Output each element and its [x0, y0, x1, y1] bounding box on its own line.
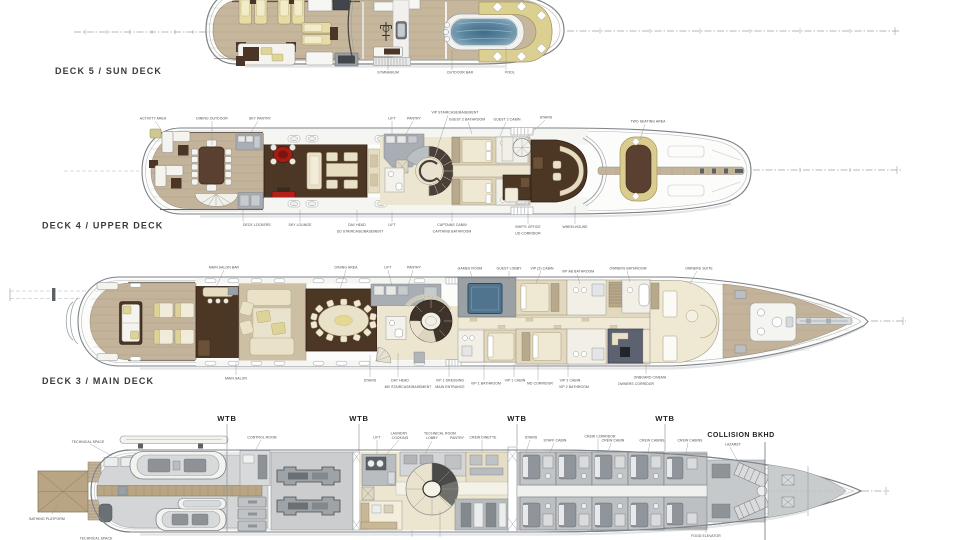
svg-text:STAIRS: STAIRS: [540, 116, 553, 120]
svg-text:COOKING: COOKING: [392, 436, 409, 440]
svg-text:TECHNICAL SPACE: TECHNICAL SPACE: [80, 537, 113, 540]
svg-text:UD CORRIDOR: UD CORRIDOR: [515, 232, 541, 236]
svg-text:MAIN SALON: MAIN SALON: [225, 377, 247, 381]
svg-text:DECK 4 / UPPER DECK: DECK 4 / UPPER DECK: [42, 221, 163, 231]
svg-text:GUEST LOBBY: GUEST LOBBY: [497, 267, 523, 271]
svg-text:PANTRY: PANTRY: [407, 117, 422, 121]
svg-text:OWNERS BATHROOM: OWNERS BATHROOM: [609, 267, 646, 271]
svg-text:VIP 2 CABIN: VIP 2 CABIN: [560, 379, 581, 383]
svg-text:CONTROL ROOM: CONTROL ROOM: [247, 436, 276, 440]
svg-text:GUEST 2 BATHROOM: GUEST 2 BATHROOM: [449, 118, 485, 122]
svg-text:LIFT: LIFT: [384, 266, 391, 270]
svg-text:VIP AB BATHROOM: VIP AB BATHROOM: [562, 270, 595, 274]
svg-text:DECK 3 / MAIN DECK: DECK 3 / MAIN DECK: [42, 376, 154, 386]
svg-text:CAPTAINS BATHROOM: CAPTAINS BATHROOM: [433, 230, 472, 234]
svg-text:VIP 1 DRESSING: VIP 1 DRESSING: [436, 379, 465, 383]
svg-text:DAY HEAD: DAY HEAD: [391, 379, 409, 383]
svg-text:CREW CABINS: CREW CABINS: [639, 439, 665, 443]
svg-text:OWNERS SUITE: OWNERS SUITE: [685, 267, 713, 271]
svg-text:PANTRY: PANTRY: [407, 266, 422, 270]
svg-text:VIP 1 BATHROOM: VIP 1 BATHROOM: [471, 382, 501, 386]
svg-text:CREW DINETTE: CREW DINETTE: [469, 436, 497, 440]
svg-text:WTB: WTB: [655, 414, 674, 423]
svg-text:DECK 5 / SUN DECK: DECK 5 / SUN DECK: [55, 66, 162, 76]
svg-text:GUEST 2 CABIN: GUEST 2 CABIN: [493, 118, 521, 122]
svg-text:VIP (2) CABIN: VIP (2) CABIN: [530, 267, 554, 271]
svg-text:CREW CABIN: CREW CABIN: [602, 439, 625, 443]
svg-text:ONBOARD CINEMA: ONBOARD CINEMA: [634, 376, 667, 380]
svg-text:SKY LOUNGE: SKY LOUNGE: [289, 223, 313, 227]
svg-text:SKY PANTRY: SKY PANTRY: [249, 117, 272, 121]
svg-text:GAMES ROOM: GAMES ROOM: [458, 267, 483, 271]
svg-text:GYMNASIUM: GYMNASIUM: [377, 71, 399, 75]
svg-text:MD STAIRCASE/BASEMENT: MD STAIRCASE/BASEMENT: [385, 385, 432, 389]
svg-text:POOL: POOL: [505, 71, 515, 75]
svg-text:LIFT: LIFT: [388, 117, 395, 121]
svg-text:SHIP'S OFFICE: SHIP'S OFFICE: [515, 225, 541, 229]
svg-text:CREW CABINS: CREW CABINS: [677, 439, 703, 443]
svg-text:DINING AREA: DINING AREA: [335, 266, 359, 270]
svg-text:WHEELHOUSE: WHEELHOUSE: [562, 225, 588, 229]
svg-text:STAIRS: STAIRS: [364, 379, 377, 383]
svg-text:DECK LOCKERS: DECK LOCKERS: [243, 223, 271, 227]
svg-text:TECHNICAL SPACE: TECHNICAL SPACE: [72, 440, 105, 444]
svg-text:MD CORRIDOR: MD CORRIDOR: [527, 382, 553, 386]
svg-text:LOBBY: LOBBY: [426, 436, 438, 440]
svg-text:ACTIVITY AREA: ACTIVITY AREA: [140, 117, 167, 121]
svg-text:VIP STAIRCASE/BASEMENT: VIP STAIRCASE/BASEMENT: [431, 111, 478, 115]
svg-text:LAZARET: LAZARET: [725, 443, 741, 447]
svg-text:WTB: WTB: [507, 414, 526, 423]
svg-text:DINING OUTDOOR: DINING OUTDOOR: [196, 117, 228, 121]
svg-text:PANTRY: PANTRY: [450, 436, 465, 440]
svg-text:MAIN ENTRANCE: MAIN ENTRANCE: [435, 385, 465, 389]
svg-text:OWNERS CORRIDOR: OWNERS CORRIDOR: [618, 382, 655, 386]
svg-text:LIFT: LIFT: [388, 223, 395, 227]
svg-text:FOOD ELEVATOR: FOOD ELEVATOR: [691, 534, 721, 538]
svg-text:TWO SEATING AREA: TWO SEATING AREA: [630, 120, 666, 124]
svg-text:OUTDOOR BAR: OUTDOOR BAR: [447, 71, 474, 75]
svg-text:MAIN SALON BAR: MAIN SALON BAR: [209, 266, 240, 270]
svg-text:VIP 1 CABIN: VIP 1 CABIN: [505, 379, 526, 383]
svg-text:VIP 2 BATHROOM: VIP 2 BATHROOM: [559, 385, 589, 389]
svg-text:UD STAIRCASE/BASEMENT: UD STAIRCASE/BASEMENT: [337, 230, 384, 234]
svg-text:COLLISION BKHD: COLLISION BKHD: [707, 432, 774, 439]
svg-text:BATHING PLATFORM: BATHING PLATFORM: [29, 517, 65, 521]
svg-text:WTB: WTB: [349, 414, 368, 423]
svg-text:STAFF CABIN: STAFF CABIN: [544, 439, 567, 443]
svg-text:CAPTAINS CABIN: CAPTAINS CABIN: [437, 223, 467, 227]
svg-text:LIFT: LIFT: [373, 436, 380, 440]
svg-text:WTB: WTB: [217, 414, 236, 423]
svg-text:STAIRS: STAIRS: [525, 436, 538, 440]
svg-text:DAY HEAD: DAY HEAD: [348, 223, 366, 227]
